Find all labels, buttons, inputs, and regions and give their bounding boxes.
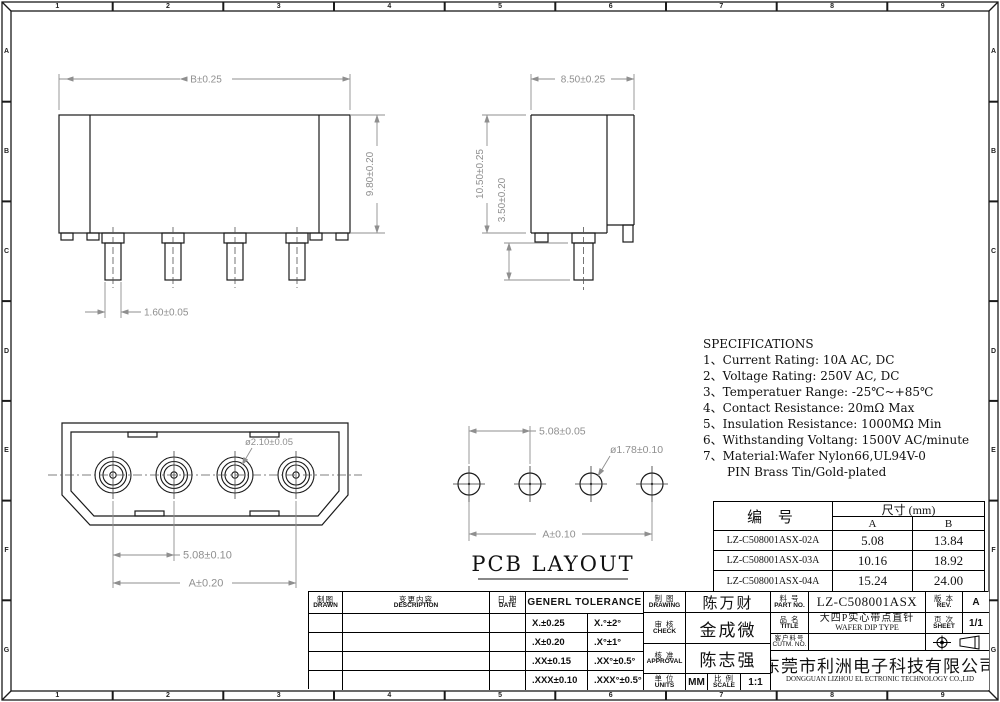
part-no-label-en: PART NO. bbox=[774, 603, 805, 610]
revision-cell bbox=[309, 614, 343, 633]
tolerance-header: GENERL TOLERANCE bbox=[526, 592, 644, 614]
revision-cell bbox=[343, 671, 490, 690]
spec-line: PIN Brass Tin/Gold-plated bbox=[703, 464, 995, 480]
dimension-labels: ø2.10±0.05 5.08±0.10 A±0.20 bbox=[183, 437, 293, 590]
tolerance-value: .XXX±0.10 bbox=[526, 671, 588, 690]
table-cell-part: LZ-C508001ASX-03A bbox=[714, 551, 833, 571]
ruler-label: 4 bbox=[334, 691, 445, 700]
sheet-label: 页 次 SHEET bbox=[926, 613, 963, 634]
rev-value: A bbox=[963, 592, 989, 613]
spec-line: 1、Current Rating: 10A AC, DC bbox=[703, 352, 995, 368]
ruler-label: 1 bbox=[2, 691, 113, 700]
ruler-left: ABCDEFG bbox=[2, 2, 11, 700]
units-label: 单 位 UNITS bbox=[644, 674, 686, 690]
scale-value: 1:1 bbox=[741, 674, 771, 690]
revision-cell bbox=[490, 633, 526, 652]
date-label: 日 期 DATE bbox=[490, 592, 526, 614]
drawing-label-en: DRAWING bbox=[649, 603, 680, 610]
part-no-label: 料 号 PART NO. bbox=[771, 592, 809, 613]
units-label-en: UNITS bbox=[655, 683, 675, 690]
ruler-label: 3 bbox=[223, 691, 334, 700]
side-view-outline bbox=[531, 115, 634, 280]
ruler-label: 1 bbox=[2, 2, 113, 11]
third-angle-projection-icon bbox=[929, 635, 987, 650]
specifications-block: SPECIFICATIONS 1、Current Rating: 10A AC,… bbox=[703, 336, 995, 480]
table-cell-a: 5.08 bbox=[833, 531, 913, 551]
ruler-label: 7 bbox=[666, 2, 777, 11]
revision-cell bbox=[490, 614, 526, 633]
tolerance-value: .XX±0.15 bbox=[526, 652, 588, 671]
table-cell-part: LZ-C508001ASX-04A bbox=[714, 571, 833, 591]
crosshair-lines bbox=[453, 466, 668, 502]
spec-line: 6、Withstanding Voltang: 1500V AC/minute bbox=[703, 432, 995, 448]
front-view-drawing: B±0.25 9.80±0.20 1.60±0.05 bbox=[40, 60, 440, 320]
approval-label-en: APPROVAL bbox=[647, 659, 683, 666]
dimension-lines bbox=[113, 448, 296, 588]
drawn-label: 制图 DRAWN bbox=[309, 592, 343, 614]
pcb-layout-title: PCB LAYOUT bbox=[471, 552, 634, 576]
ruler-label: B bbox=[989, 102, 998, 202]
dimension-lines bbox=[482, 74, 634, 280]
title-label-en: TITLE bbox=[780, 624, 798, 631]
dimension-label: 9.80±0.20 bbox=[365, 151, 376, 196]
drawing-label: 制 图 DRAWING bbox=[644, 592, 686, 613]
drawn-label-en: DRAWN bbox=[313, 603, 338, 610]
table-cell-b: 18.92 bbox=[913, 551, 984, 571]
description-label: 变更内容 DESCRIPTION bbox=[343, 592, 490, 614]
revision-cell bbox=[490, 652, 526, 671]
ruler-label: C bbox=[2, 201, 11, 301]
pcb-layout-drawing: 5.08±0.05 ø1.78±0.10 A±0.10 PCB LAYOUT bbox=[430, 410, 720, 585]
dimension-label: A±0.10 bbox=[542, 529, 575, 541]
ruler-label: 6 bbox=[555, 691, 666, 700]
ruler-label: D bbox=[2, 301, 11, 401]
dimension-labels: B±0.25 9.80±0.20 1.60±0.05 bbox=[144, 75, 376, 319]
dimension-labels: 8.50±0.25 10.50±0.25 3.50±0.20 bbox=[475, 75, 606, 223]
company-name-en: DONGGUAN LIZHOU EL ECTRONIC TECHNOLOGY C… bbox=[786, 677, 974, 684]
rev-label-en: REV. bbox=[937, 603, 952, 610]
ruler-label: A bbox=[989, 2, 998, 102]
scale-label: 比 例 SCALE bbox=[708, 674, 741, 690]
ruler-label: 4 bbox=[334, 2, 445, 11]
company-cell: 东莞市利洲电子科技有限公司 DONGGUAN LIZHOU EL ECTRONI… bbox=[771, 651, 989, 690]
revision-cell bbox=[490, 671, 526, 690]
ruler-label: 9 bbox=[887, 2, 998, 11]
ruler-label: 8 bbox=[777, 691, 888, 700]
tolerance-value: X.°±2° bbox=[588, 614, 644, 633]
center-lines bbox=[113, 227, 297, 288]
specifications-title: SPECIFICATIONS bbox=[703, 336, 995, 352]
drawing-sheet: 123456789 123456789 ABCDEFG ABCDEFG bbox=[0, 0, 1000, 702]
parts-table: 编 号 尺寸 (mm) A B LZ-C508001ASX-02A 5.08 1… bbox=[713, 501, 985, 592]
approval-name: 陈志强 bbox=[686, 644, 771, 674]
rev-label: 版 本 REV. bbox=[926, 592, 963, 613]
revision-cell bbox=[343, 614, 490, 633]
sheet-label-en: SHEET bbox=[933, 624, 955, 631]
dimension-lines bbox=[59, 74, 385, 318]
table-cell-b: 24.00 bbox=[913, 571, 984, 591]
parts-table-header-dim: 尺寸 (mm) bbox=[833, 502, 984, 517]
ruler-label: 7 bbox=[666, 691, 777, 700]
ruler-label: 5 bbox=[445, 2, 556, 11]
ruler-label: 9 bbox=[887, 691, 998, 700]
check-label-en: CHECK bbox=[653, 629, 676, 636]
ruler-label: C bbox=[989, 201, 998, 301]
revision-cell bbox=[343, 652, 490, 671]
dimension-label: 3.50±0.20 bbox=[497, 177, 508, 222]
ruler-label: 8 bbox=[777, 2, 888, 11]
date-label-en: DATE bbox=[499, 603, 516, 610]
drawing-name: 陈万财 bbox=[686, 592, 771, 613]
scale-label-en: SCALE bbox=[713, 683, 735, 690]
ruler-label: A bbox=[2, 2, 11, 102]
approval-label: 核 准 APPROVAL bbox=[644, 644, 686, 674]
title-label: 品 名 TITLE bbox=[771, 613, 809, 634]
projection-symbol-cell bbox=[926, 634, 989, 651]
description-label-en: DESCRIPTION bbox=[394, 603, 438, 610]
ruler-label: 5 bbox=[445, 691, 556, 700]
tolerance-value: .XXX°±0.5° bbox=[588, 671, 644, 690]
table-cell-a: 10.16 bbox=[833, 551, 913, 571]
dimension-label: ø1.78±0.10 bbox=[610, 444, 663, 456]
spec-line: 4、Contact Resistance: 20mΩ Max bbox=[703, 400, 995, 416]
hole-centers bbox=[468, 483, 653, 485]
spec-line: 5、Insulation Resistance: 1000MΩ Min bbox=[703, 416, 995, 432]
front-view-outline bbox=[59, 115, 350, 280]
title-value: 大四P实心带点直针 WAFER DIP TYPE bbox=[809, 613, 926, 634]
tolerance-value: .X±0.20 bbox=[526, 633, 588, 652]
ruler-label: 3 bbox=[223, 2, 334, 11]
parts-table-header-part: 编 号 bbox=[714, 502, 833, 531]
pcb-holes bbox=[458, 473, 663, 495]
ruler-label: G bbox=[989, 600, 998, 700]
ruler-label: G bbox=[2, 600, 11, 700]
revision-cell bbox=[309, 633, 343, 652]
tolerance-value: .XX°±0.5° bbox=[588, 652, 644, 671]
parts-table-header-a: A bbox=[833, 517, 913, 531]
ruler-top: 123456789 bbox=[2, 2, 998, 11]
dimension-labels: 5.08±0.05 ø1.78±0.10 A±0.10 bbox=[539, 426, 663, 541]
ruler-label: F bbox=[989, 501, 998, 601]
dimension-label: B±0.25 bbox=[190, 75, 222, 86]
check-name: 金成微 bbox=[686, 613, 771, 644]
customer-no-label: 客户料号 CUTM. NO. bbox=[771, 634, 809, 651]
dimension-label: ø2.10±0.05 bbox=[245, 437, 293, 448]
parts-table-header-b: B bbox=[913, 517, 984, 531]
title-value-en: WAFER DIP TYPE bbox=[835, 624, 899, 632]
table-cell-part: LZ-C508001ASX-02A bbox=[714, 531, 833, 551]
sheet-value: 1/1 bbox=[963, 613, 989, 634]
tolerance-value: X.±0.25 bbox=[526, 614, 588, 633]
check-label: 审 核 CHECK bbox=[644, 613, 686, 644]
ruler-label: F bbox=[2, 501, 11, 601]
customer-no-value bbox=[809, 634, 926, 651]
ruler-label: 6 bbox=[555, 2, 666, 11]
tolerance-value: .X°±1° bbox=[588, 633, 644, 652]
side-view-drawing: 8.50±0.25 10.50±0.25 3.50±0.20 bbox=[460, 60, 690, 320]
bottom-view-outline bbox=[62, 423, 348, 525]
bottom-view-drawing: ø2.10±0.05 5.08±0.10 A±0.20 bbox=[40, 415, 370, 597]
spec-line: 7、Material:Wafer Nylon66,UL94V-0 bbox=[703, 448, 995, 464]
company-name-cn: 东莞市利洲电子科技有限公司 bbox=[771, 658, 989, 675]
dimension-label: 5.08±0.05 bbox=[539, 426, 586, 438]
revision-cell bbox=[309, 671, 343, 690]
ruler-label: E bbox=[2, 401, 11, 501]
table-cell-b: 13.84 bbox=[913, 531, 984, 551]
dimension-label: A±0.20 bbox=[189, 578, 224, 590]
ruler-label: 2 bbox=[113, 691, 224, 700]
units-value: MM bbox=[686, 674, 708, 690]
spec-line: 3、Temperatuer Range: -25℃~+85℃ bbox=[703, 384, 995, 400]
spec-line: 2、Voltage Rating: 250V AC, DC bbox=[703, 368, 995, 384]
customer-no-label-en: CUTM. NO. bbox=[773, 642, 807, 649]
dimension-label: 1.60±0.05 bbox=[144, 308, 189, 319]
ruler-label: B bbox=[2, 102, 11, 202]
table-cell-a: 15.24 bbox=[833, 571, 913, 591]
part-no-value: LZ-C508001ASX bbox=[809, 592, 926, 613]
ruler-label: 2 bbox=[113, 2, 224, 11]
dimension-label: 8.50±0.25 bbox=[561, 75, 606, 86]
title-block: 制图 DRAWN 变更内容 DESCRIPTION 日 期 DATE GENER… bbox=[308, 591, 988, 689]
revision-cell bbox=[343, 633, 490, 652]
ruler-bottom: 123456789 bbox=[2, 691, 998, 700]
dimension-label: 10.50±0.25 bbox=[475, 149, 486, 199]
revision-cell bbox=[309, 652, 343, 671]
dimension-label: 5.08±0.10 bbox=[183, 550, 232, 562]
